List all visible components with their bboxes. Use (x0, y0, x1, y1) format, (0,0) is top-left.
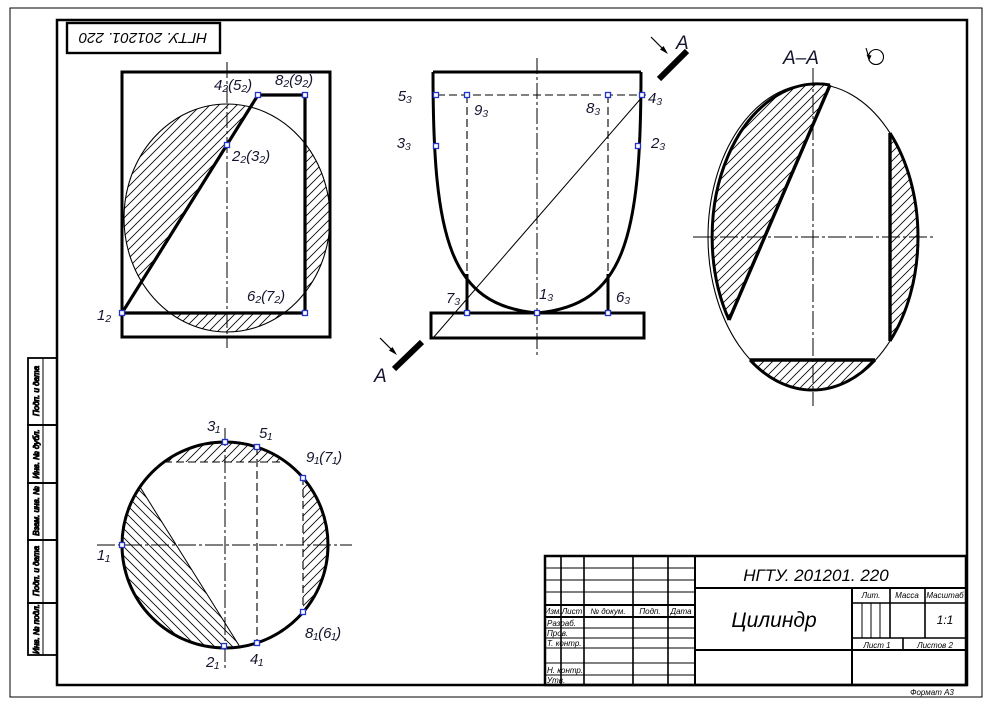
marker-1-1 (120, 543, 125, 548)
marker-8-1 (301, 610, 306, 615)
side-box-label-1: Подп. и дата (32, 365, 41, 416)
title-block-lit-subcells (862, 603, 880, 638)
marker-6-3 (606, 311, 611, 316)
marker-4-2 (256, 93, 261, 98)
label-7-3: 7₃ (446, 290, 460, 307)
label-8-2: 8₂(9₂) (275, 72, 313, 89)
label-2-3: 2₃ (650, 135, 665, 152)
label-5-1: 5₁ (259, 425, 272, 442)
label-6-2: 6₂(7₂) (247, 288, 285, 305)
label-1-3: 1₃ (539, 286, 553, 303)
label-4-1: 4₁ (250, 651, 263, 668)
marker-3-3 (434, 144, 439, 149)
title-row-razrab: Разраб. (547, 619, 576, 628)
title-header-doc: № докум. (590, 607, 625, 616)
label-3-1: 3₁ (207, 418, 220, 435)
section-stroke-bottom (394, 342, 422, 369)
label-3-3: 3₃ (397, 135, 411, 152)
profile-point-markers (434, 93, 645, 316)
marker-5-1 (255, 445, 260, 450)
section-hatch-left (712, 84, 830, 320)
title-doc-number: НГТУ. 201201. 220 (743, 566, 889, 585)
label-8-1: 8₁(6₁) (305, 625, 341, 642)
format-note: Формат А3 (910, 688, 954, 697)
side-box-label-2: Инв. № дубл. (32, 429, 41, 478)
view-frontal: 4₂(5₂) 8₂(9₂) 2₂(3₂) 6₂(7₂) 1₂ (97, 62, 330, 348)
label-2-2: 2₂(3₂) (231, 148, 270, 165)
title-row-utv: Утв. (546, 676, 565, 685)
label-4-2: 4₂(5₂) (214, 77, 252, 94)
rotated-symbol-icon (866, 48, 884, 65)
section-stroke-top (659, 51, 687, 79)
section-letter-top: А (675, 33, 689, 54)
title-sheet-number: Лист 1 (862, 641, 890, 650)
drawing-sheet: НГТУ. 201201. 220 Подп. и дата Инв. № ду… (0, 0, 991, 705)
profile-thin-diagonal (433, 96, 643, 338)
side-column-boxes: Подп. и дата Инв. № дубл. Взам. инв. № П… (28, 358, 57, 655)
label-1-1: 1₁ (97, 547, 110, 564)
marker-1-2 (120, 311, 125, 316)
label-1-2: 1₂ (97, 307, 111, 324)
horizontal-hatch-left (122, 487, 240, 648)
marker-3-1 (223, 440, 228, 445)
top-stamp: НГТУ. 201201. 220 (67, 23, 220, 53)
title-header-massa: Масса (895, 591, 919, 600)
frontal-hatch-left (124, 104, 250, 282)
marker-7-3 (465, 311, 470, 316)
title-row-prov: Пров. (547, 629, 568, 638)
label-8-3: 8₃ (586, 100, 600, 117)
section-mark-top: А (651, 33, 689, 79)
marker-1-3 (535, 311, 540, 316)
frontal-hatch-right (305, 144, 330, 293)
title-header-masshtab: Масштаб (926, 591, 964, 600)
marker-2-2 (225, 143, 230, 148)
marker-2-1 (222, 644, 227, 649)
title-scale-value: 1:1 (937, 613, 954, 627)
marker-8-2 (303, 93, 308, 98)
view-profile: 5₃ 9₃ 8₃ 4₃ 3₃ 2₃ 7₃ 1₃ 6₃ А А (373, 33, 689, 387)
marker-5-3 (434, 93, 439, 98)
section-letter-bottom: А (373, 366, 387, 387)
title-header-podp: Подп. (639, 607, 660, 616)
title-row-tkontr: Т. контр. (547, 639, 582, 648)
drawing-canvas: НГТУ. 201201. 220 Подп. и дата Инв. № ду… (0, 0, 991, 705)
title-row-nkontr: Н. контр. (547, 666, 583, 675)
label-5-3: 5₃ (398, 88, 412, 105)
section-title: А–А (782, 48, 819, 69)
side-box-label-4: Подп. и дата (32, 545, 41, 596)
title-header-list: Лист (561, 607, 583, 616)
marker-9-1 (301, 476, 306, 481)
side-box-label-5: Инв. № подл. (32, 604, 41, 654)
marker-4-3 (640, 93, 645, 98)
label-9-1: 9₁(7₁) (306, 449, 342, 466)
rotated-symbol-arrowhead (867, 55, 872, 62)
side-box-label-3: Взам. инв. № (32, 486, 41, 536)
title-block: НГТУ. 201201. 220 Цилиндр 1:1 Изм. Лист … (544, 556, 966, 685)
title-header-izm: Изм. (544, 607, 561, 616)
title-sheets-total: Листов 2 (916, 641, 953, 650)
top-stamp-text: НГТУ. 201201. 220 (78, 29, 207, 46)
label-2-1: 2₁ (205, 654, 219, 671)
marker-4-1 (255, 641, 260, 646)
section-mark-bottom: А (373, 338, 422, 387)
title-header-data: Дата (669, 607, 692, 616)
marker-9-3 (465, 93, 470, 98)
label-9-3: 9₃ (474, 102, 488, 119)
view-section-aa: А–А (693, 48, 933, 406)
marker-8-3 (606, 93, 611, 98)
marker-2-3 (636, 144, 641, 149)
marker-6-2 (303, 311, 308, 316)
title-part-name: Цилиндр (731, 609, 816, 632)
title-header-lit: Лит. (861, 591, 881, 600)
label-6-3: 6₃ (616, 289, 630, 306)
view-horizontal: 3₁ 5₁ 9₁(7₁) 1₁ 8₁(6₁) 2₁ 4₁ (97, 418, 352, 671)
label-4-3: 4₃ (648, 90, 662, 107)
